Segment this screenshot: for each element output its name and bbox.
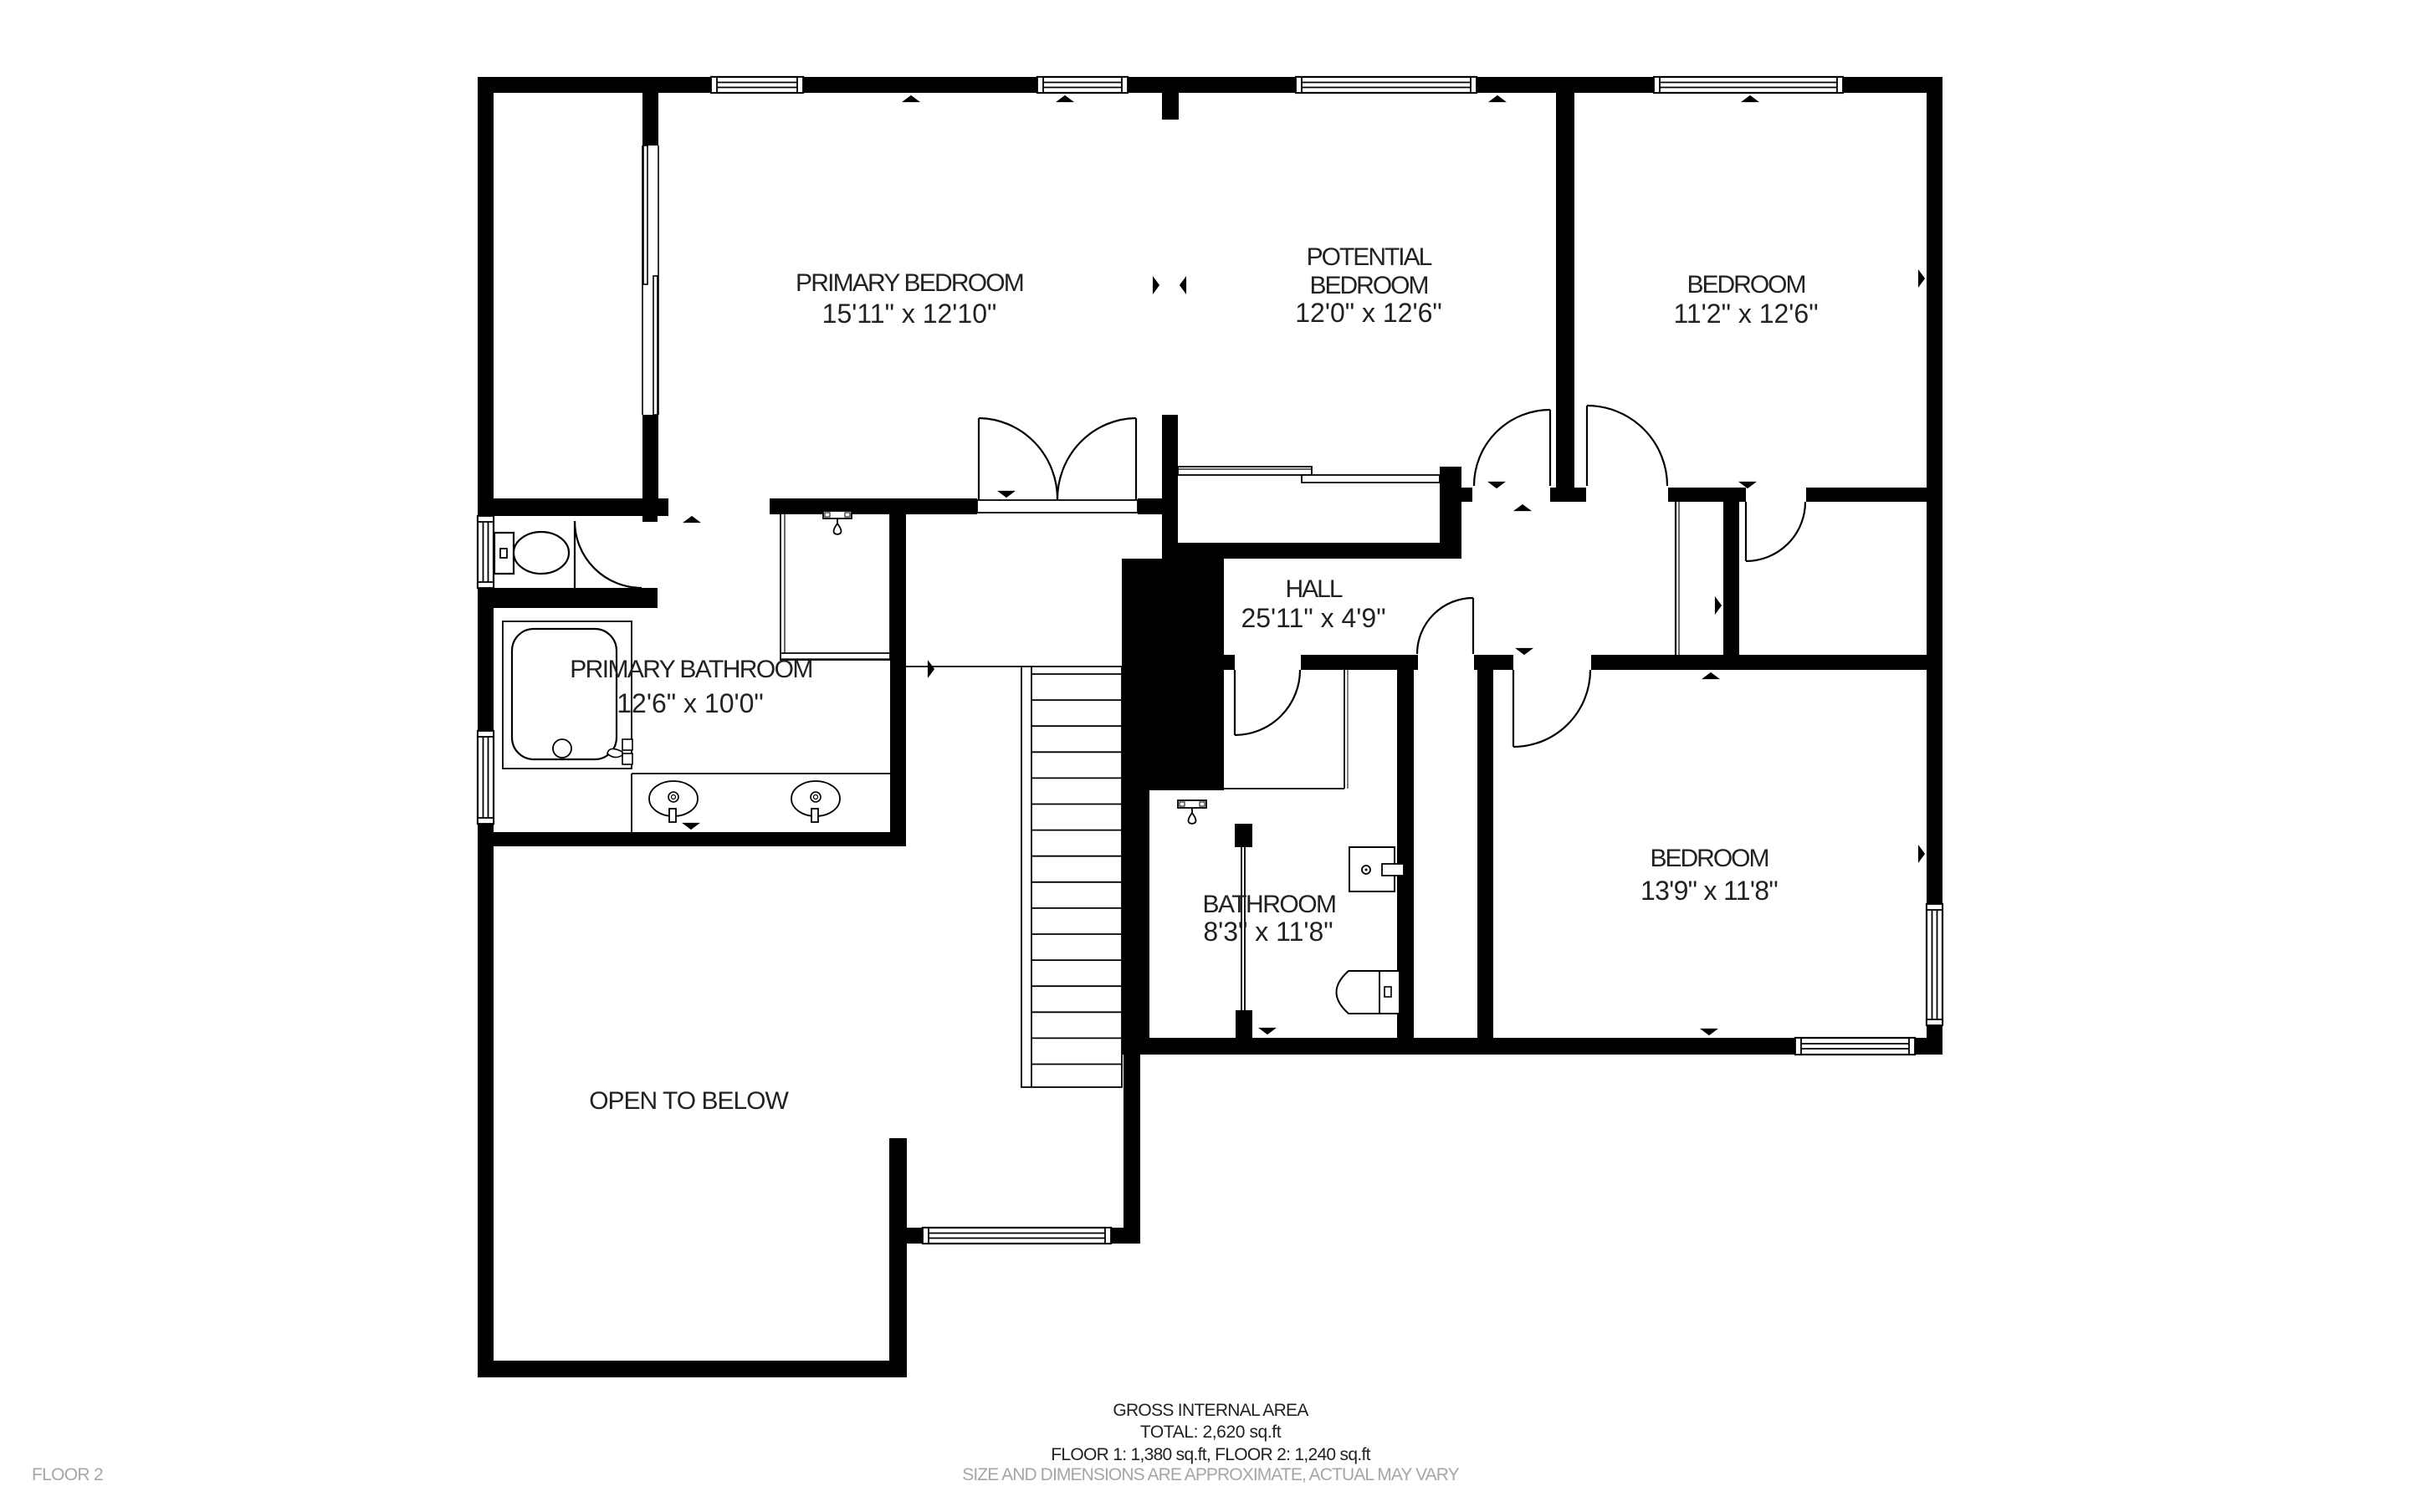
svg-text:11'2" x 12'6": 11'2" x 12'6" [1673,299,1818,329]
svg-text:BEDROOM: BEDROOM [1687,271,1804,299]
svg-text:12'0" x 12'6": 12'0" x 12'6" [1295,298,1442,328]
svg-text:FLOOR 1: 1,380 sq.ft, FLOOR 2:: FLOOR 1: 1,380 sq.ft, FLOOR 2: 1,240 sq.… [1051,1445,1370,1464]
svg-text:BATHROOM: BATHROOM [1202,891,1335,918]
svg-text:8'3" x 11'8": 8'3" x 11'8" [1203,917,1333,947]
svg-text:OPEN TO BELOW: OPEN TO BELOW [589,1087,789,1115]
svg-text:13'9" x 11'8": 13'9" x 11'8" [1640,876,1778,906]
svg-text:PRIMARY BEDROOM: PRIMARY BEDROOM [796,269,1023,297]
svg-text:25'11" x 4'9": 25'11" x 4'9" [1241,603,1385,633]
svg-text:TOTAL: 2,620 sq.ft: TOTAL: 2,620 sq.ft [1140,1423,1282,1442]
svg-text:GROSS INTERNAL AREA: GROSS INTERNAL AREA [1113,1401,1308,1420]
svg-text:15'11" x 12'10": 15'11" x 12'10" [822,299,997,329]
svg-text:HALL: HALL [1285,575,1342,603]
svg-text:SIZE AND DIMENSIONS ARE APPROX: SIZE AND DIMENSIONS ARE APPROXIMATE, ACT… [962,1465,1459,1484]
svg-text:BEDROOM: BEDROOM [1309,272,1427,299]
svg-text:POTENTIAL: POTENTIAL [1307,243,1432,271]
svg-text:PRIMARY BATHROOM: PRIMARY BATHROOM [570,656,811,683]
svg-text:FLOOR 2: FLOOR 2 [32,1465,103,1484]
svg-text:BEDROOM: BEDROOM [1650,845,1768,872]
svg-text:12'6" x 10'0": 12'6" x 10'0" [617,688,764,718]
